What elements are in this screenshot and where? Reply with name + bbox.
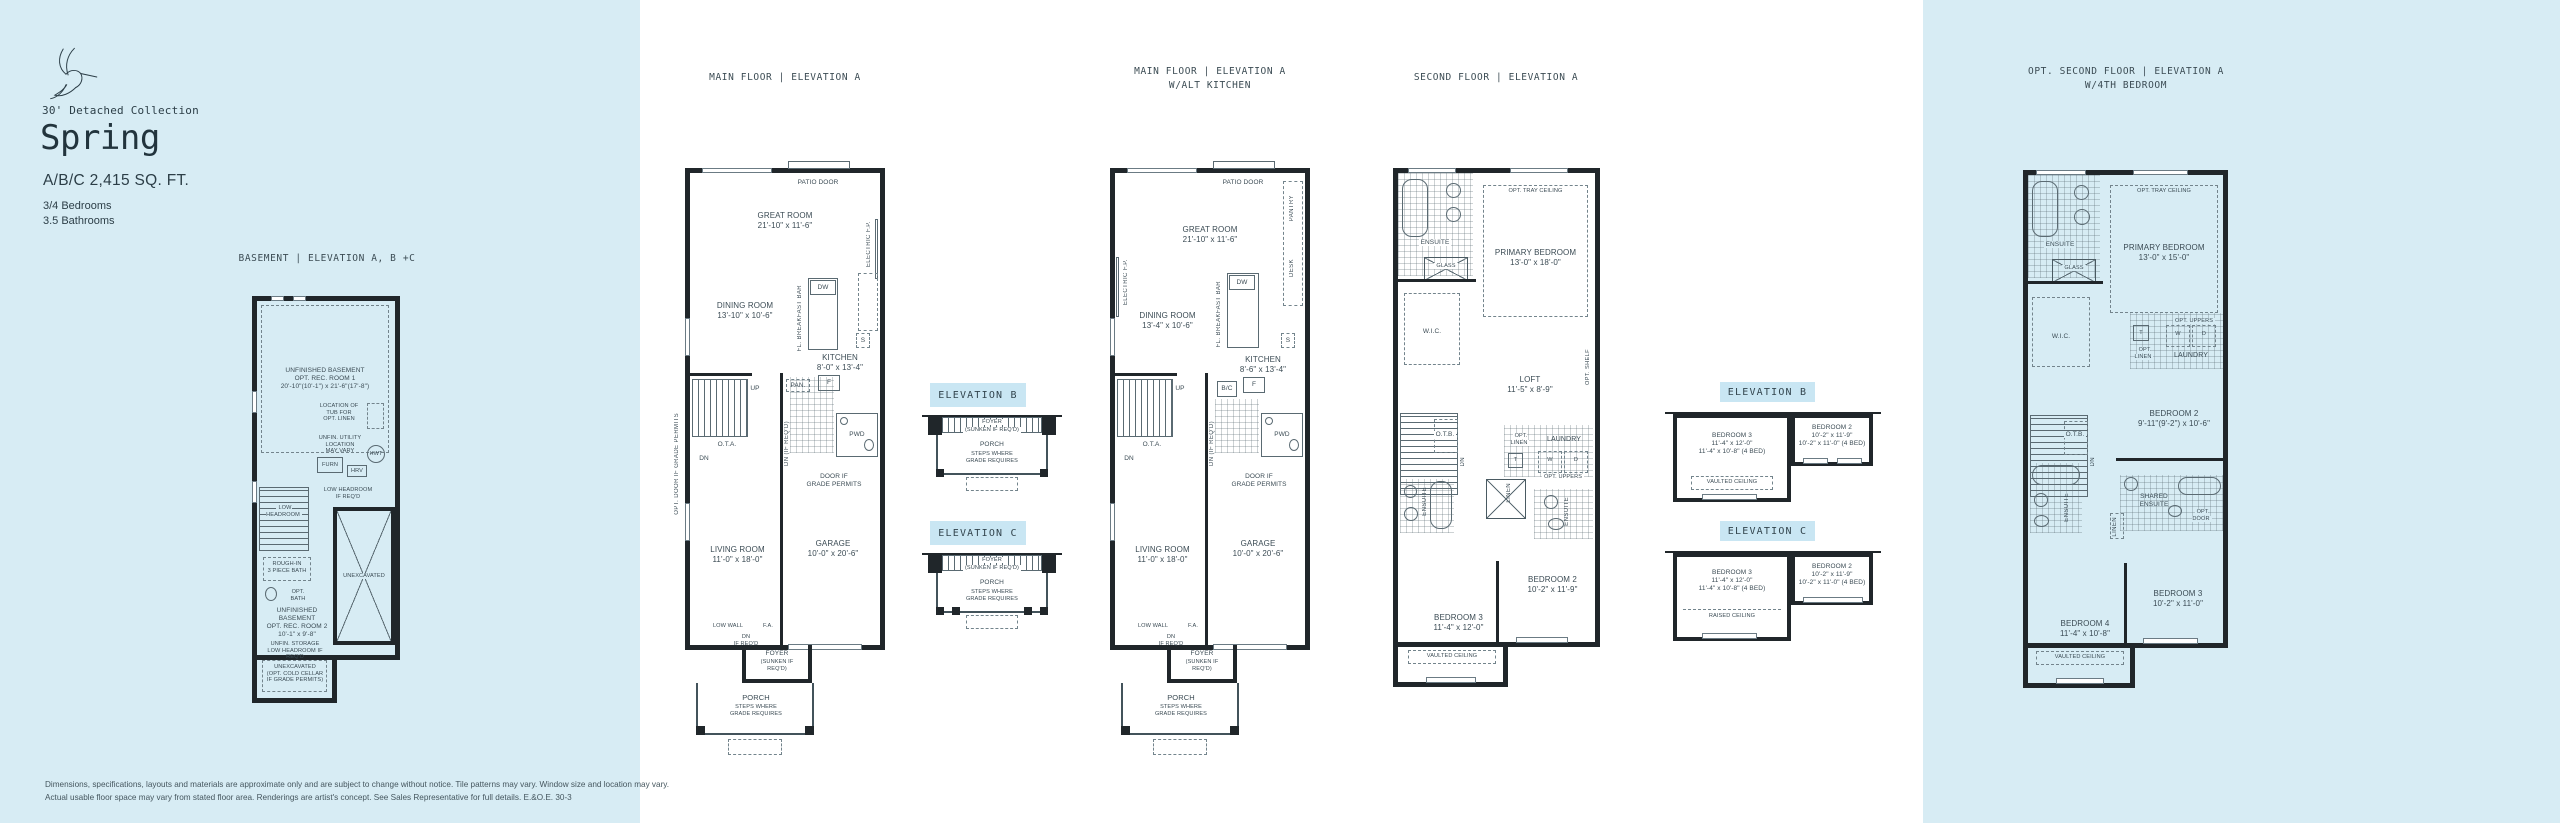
powder-label: PWD [838,431,876,439]
main-floor-plan-alt-kitchen: PATIO DOOR PANTRY DESK GREAT ROOM 21'-10… [1110,168,1310,650]
sink-icon [2074,209,2090,225]
interior-wall [690,373,752,376]
basement-window [271,296,284,301]
s-label: S [1281,337,1295,345]
porch-label: PORCH [716,693,796,703]
garage-label: GARAGE 10'-0" x 20'-6" [788,539,878,560]
inset-bedroom2-label: BEDROOM 2 10'-2" x 11'-9" 10'-2" x 11'-0… [1795,424,1869,448]
bedroom4-window [2056,678,2104,684]
porch-post [952,607,960,615]
tray-ceiling-label: OPT. TRAY CEILING [2120,188,2208,195]
vaulted-label: VAULTED CEILING [1693,479,1771,486]
low-wall-label: LOW WALL [1129,623,1177,630]
rough-in-bath-label: ROUGH-IN 3 PIECE BATH [263,561,311,574]
opt-door-grade-label: OPT. DOOR IF GRADE PERMITS [674,413,680,515]
basement-plan: UNFINISHED BASEMENT OPT. REC. ROOM 1 20'… [252,296,400,660]
tub-icon [2032,465,2080,485]
opt-tub-box [367,403,384,429]
sink-icon [2124,477,2138,491]
up-label: UP [1171,385,1189,393]
basement-title: BASEMENT | ELEVATION A, B +C [217,253,437,264]
porch-post [1121,726,1130,735]
sink-icon [1446,207,1461,222]
dn-if-reqd-label: DN (IF REQ'D) [1209,421,1215,466]
elevation-c-badge: ELEVATION C [1720,521,1815,541]
wic-label: W.I.C. [2044,333,2078,341]
linen-label: LINEN [2112,517,2118,537]
opt-bath-label: OPT. BATH [283,589,313,602]
living-room-label: LIVING ROOM 11'-0" x 18'-0" [1115,545,1210,566]
bedroom2-window [1516,637,1568,643]
rec-room-1-label: UNFINISHED BASEMENT OPT. REC. ROOM 1 20'… [262,367,388,391]
wic-label: W.I.C. [1416,328,1448,336]
breakfast-bar-label: FL. BREAKFAST BAR [797,285,803,351]
primary-bedroom-label: PRIMARY BEDROOM 13'-0" x 18'-0" [1483,248,1588,269]
toilet-icon [1404,507,1418,521]
porch-post [936,607,944,615]
inset-steps [966,615,1018,629]
inset-bedroom2-box: BEDROOM 2 10'-2" x 11'-9" 10'-2" x 11'-0… [1791,414,1873,466]
s-label: S [856,337,870,345]
dishwasher-label: DW [1229,279,1255,287]
foyer-note-label: (SUNKEN IF REQ'D) [1172,659,1232,672]
inset-bedroom3-label: BEDROOM 3 11'-4" x 12'-0" 11'-4" x 10'-8… [1681,432,1783,456]
bedroom3-bump: VAULTED CEILING [1393,642,1508,687]
low-headroom-reqd-label: LOW HEADROOM IF REQ'D [313,487,383,500]
opt-linen-label: OPT. LINEN [1506,433,1534,446]
glass-label: GLASS [2058,265,2090,272]
porch-post [1040,469,1048,477]
opt-uppers-label: OPT. UPPERS [2168,318,2220,325]
bedroom4-label: BEDROOM 4 11'-4" x 10'-8" [2040,619,2130,640]
vaulted-label: VAULTED CEILING [1410,653,1494,660]
primary-window [2133,170,2188,175]
up-label: UP [746,385,764,393]
pantry-cabinets [858,273,878,331]
opt-linen-text: OPT. LINEN [2135,347,2154,360]
unexcavated-area: UNEXCAVATED [333,507,395,645]
low-wall-label: LOW WALL [704,623,752,630]
bedroom4-bump: VAULTED CEILING [2023,643,2135,688]
kitchen-label: KITCHEN 8'-6" x 13'-4" [1223,355,1303,376]
sink-icon [2034,493,2048,507]
inset-window [1837,458,1862,464]
disclaimer-line2: Actual usable floor space may vary from … [45,793,572,802]
bedrooms-label: 3/4 Bedrooms [43,200,111,212]
laundry-tub-label: T [2133,330,2149,337]
great-room-label: GREAT ROOM 21'-10" x 11'-6" [1150,225,1270,246]
primary-bedroom-label: PRIMARY BEDROOM 13'-0" x 15'-0" [2110,243,2218,264]
tray-ceiling-text: OPT. TRAY CEILING [2135,188,2193,194]
opt-door-label: OPT. DOOR [2186,509,2218,522]
porch-label: PORCH [1141,693,1221,703]
ensuite-text: ENSUITE [2044,241,2077,248]
porch-post [936,469,944,477]
wic-outline [2032,297,2090,367]
inset-bedroom2-label: BEDROOM 2 10'-2" x 11'-9" 10'-2" x 11'-0… [1795,563,1869,587]
tub-location-label: LOCATION OF TUB FOR OPT. LINEN [315,403,363,423]
inset-foyer-note: (SUNKEN IF REQ'D) [958,565,1026,572]
otb-text: O.T.B. [1434,431,1457,438]
main-floor-a-title: MAIN FLOOR | ELEVATION A [675,72,895,83]
porch-post [1040,607,1048,615]
inset-porch-note: STEPS WHERE GRADE REQUIRES [958,451,1026,464]
hwt-label: HWT [367,451,385,458]
porch-post [696,726,705,735]
bedroom2-label: BEDROOM 2 10'-2" x 11'-9" [1510,575,1595,596]
fireplace-icon [1116,257,1119,317]
inset-foyer-note: (SUNKEN IF REQ'D) [958,427,1026,434]
sink-icon [1404,485,1417,498]
washer-label: W [1538,457,1562,464]
opt-linen-label: OPT. LINEN [2130,347,2158,360]
sink-icon [1446,183,1461,198]
garage-label: GARAGE 10'-0" x 20'-6" [1213,539,1303,560]
collection-label: 30' Detached Collection [42,104,199,117]
ensuite-label: ENSUITE [1406,239,1464,247]
bedroom3-label: BEDROOM 3 10'-2" x 11'-0" [2133,589,2223,610]
elevation-b-inset-second: ELEVATION B BEDROOM 3 11'-4" x 12'-0" 11… [1673,382,1873,507]
closet-x-icon [1486,479,1526,519]
dn-label: DN [1119,455,1139,463]
second-floor-plan: ENSUITE GLASS OPT. TRAY CEILING PRIMARY … [1393,168,1600,647]
opt-second-floor-title-line2: W/4TH BEDROOM [2016,80,2236,91]
great-room-window [702,168,772,173]
ota-label: O.T.A. [1137,441,1167,449]
dining-room-label: DINING ROOM 13'-10" x 10'-6" [690,301,800,322]
door-grade-label: DOOR IF GRADE PERMITS [790,473,878,489]
ensuite-label: ENSUITE [2032,241,2088,249]
inset-window [1803,597,1863,603]
right-blue-panel [1923,0,2560,823]
opt-linen-text: OPT. LINEN [1511,433,1530,446]
main-floor-alt-title-line2: W/ALT KITCHEN [1100,80,1320,91]
primary-window [1510,168,1568,173]
tray-ceiling-text: OPT. TRAY CEILING [1507,188,1565,194]
basement-window [252,481,257,503]
porch-note-label: STEPS WHERE GRADE REQUIRES [1141,704,1221,717]
second-floor-title: SECOND FLOOR | ELEVATION A [1386,72,1606,83]
fa-label: F.A. [756,623,780,630]
inset-porch-label: PORCH [962,579,1022,587]
bedroom2-label: BEDROOM 2 9'-11"(9'-2") x 10'-6" [2120,409,2228,430]
main-stairs [1117,379,1173,437]
toilet-icon [2168,505,2182,517]
rec-room-2-label: UNFINISHED BASEMENT OPT. REC. ROOM 2 10'… [265,607,329,640]
tub-icon [1402,179,1428,237]
foyer-label: FOYER [1172,650,1232,658]
inset-foyer-note-text: (SUNKEN IF REQ'D) [963,427,1021,433]
toilet-icon [2034,515,2049,527]
glass-text: GLASS [2062,265,2085,271]
garage-wall [1205,373,1208,645]
ensuite-right-label: ENSUITE [1564,497,1570,526]
tray-ceiling-label: OPT. TRAY CEILING [1493,188,1578,195]
porch-steps [728,739,782,755]
porch-steps [1153,739,1207,755]
cold-cellar-label: UNEXCAVATED (OPT. COLD CELLAR IF GRADE P… [260,664,330,684]
living-room-label: LIVING ROOM 11'-0" x 18'-0" [690,545,785,566]
inset-foyer-text: FOYER [980,557,1004,563]
inset-wall-block [928,555,942,573]
utility-label: UNFIN. UTILITY LOCATION MAY VARY [315,435,365,455]
patio-door-bump [1213,161,1275,169]
ensuite-left-label: ENSUITE [1422,487,1428,516]
unexcavated-text: UNEXCAVATED [341,573,387,579]
living-window [685,318,690,356]
inset-window [1702,494,1757,500]
dn-if-reqd-label: DN (IF REQ'D) [784,421,790,466]
disclaimer-line1: Dimensions, specifications, layouts and … [45,780,669,789]
tub-icon [2178,477,2221,495]
loft-label: LOFT 11'-5" x 8'-9" [1490,375,1570,396]
glass-label: GLASS [1430,263,1462,270]
elevation-c-badge: ELEVATION C [930,521,1026,545]
opt-uppers-label: OPT. UPPERS [1536,474,1590,481]
basement-window [252,391,257,413]
elevation-b-badge: ELEVATION B [1720,382,1815,402]
basement-stairs [259,487,309,551]
kitchen-label: KITCHEN 8'-0" x 13'-4" [800,353,880,374]
otb-text: O.T.B. [2064,431,2087,438]
hrv-label: HRV [347,468,367,475]
powder-label: PWD [1263,431,1301,439]
sink-icon [1265,417,1273,425]
opt-second-floor-plan: ENSUITE GLASS OPT. TRAY CEILING PRIMARY … [2023,170,2228,648]
inset-bedroom3-box: BEDROOM 3 11'-4" x 12'-0" 11'-4" x 10'-8… [1673,553,1791,641]
dn-label: DN [2090,457,2096,466]
dryer-label: D [2192,331,2216,338]
elevation-b-badge: ELEVATION B [930,383,1026,407]
breakfast-bar-label: FL. BREAKFAST BAR [1216,281,1222,347]
inset-foyer-note-text: (SUNKEN IF REQ'D) [963,565,1021,571]
model-name: Spring [40,118,160,158]
otb-label: O.T.B. [1430,431,1460,439]
interior-wall [1398,279,1476,282]
ensuite-text: ENSUITE [1419,239,1452,246]
living-window [1110,318,1115,356]
laundry-label: LAUNDRY [1536,435,1592,444]
pantry-label: PANTRY [1289,195,1295,221]
patio-door-bump [788,161,850,169]
inset-wall-block [1042,555,1056,573]
bedroom3-window [2143,638,2198,644]
desk-label: DESK [1289,259,1295,277]
inset-foyer-text: FOYER [980,419,1004,425]
low-headroom-label: LOW HEADROOM [259,505,309,518]
main-stairs [692,379,748,437]
garage-wall [780,373,783,645]
floorplan-sheet: 30' Detached Collection Spring A/B/C 2,4… [0,0,2560,823]
great-room-window [1127,168,1197,173]
door-grade-label: DOOR IF GRADE PERMITS [1215,473,1303,489]
electric-fp-label: ELECTRIC F.P. [1123,259,1129,305]
dryer-label: D [1564,457,1588,464]
opt-door-text: OPT. DOOR [2192,509,2211,522]
elevation-c-inset-main: ELEVATION C FOYER (SUNKEN IF REQ'D) PORC… [922,521,1062,641]
bathrooms-label: 3.5 Bathrooms [43,215,115,227]
foyer-note-label: (SUNKEN IF REQ'D) [747,659,807,672]
inset-foyer-label: FOYER [970,419,1014,426]
raised-ceiling-line [1683,609,1781,610]
patio-door-label: PATIO DOOR [1203,179,1283,187]
foyer-label: FOYER [747,650,807,658]
vaulted-label: VAULTED CEILING [2038,654,2122,661]
inset-porch-note: STEPS WHERE GRADE REQUIRES [958,589,1026,602]
sink-icon [840,417,848,425]
toilet-icon [1548,518,1564,530]
hummingbird-logo [38,44,108,110]
otb-label: O.T.B. [2060,431,2090,439]
unexcavated-label: UNEXCAVATED [339,573,389,580]
ensuite2-label: ENSUITE [2064,493,2070,522]
sink-icon [1544,495,1558,509]
inset-wall-block [928,417,942,435]
inset-bedroom3-label: BEDROOM 3 11'-4" x 12'-0" 11'-4" x 10'-8… [1681,569,1783,593]
bedroom3-window [1426,677,1476,683]
furnace-label: FURN [317,462,343,469]
inset-bedroom3-box: BEDROOM 3 11'-4" x 12'-0" 11'-4" x 10'-8… [1673,414,1791,502]
electric-fp-label: ELECTRIC F.P. [866,221,872,267]
toilet-icon [265,587,277,601]
basement-window [293,296,306,301]
inset-window [1702,633,1757,639]
opt-u ppers-text: OPT. UPPERS [1542,474,1584,480]
opt-uppers-text: OPT. UPPERS [2173,318,2215,324]
square-footage: A/B/C 2,415 SQ. FT. [43,172,189,190]
toilet-icon [864,439,874,451]
inset-bedroom2-box: BEDROOM 2 10'-2" x 11'-9" 10'-2" x 11'-0… [1791,553,1873,605]
living-window [1110,503,1115,541]
fireplace-icon [875,219,878,279]
porch-post [1024,607,1032,615]
glass-text: GLASS [1434,263,1457,269]
toilet-icon [1289,439,1299,451]
main-floor-alt-title-line1: MAIN FLOOR | ELEVATION A [1100,66,1320,77]
ota-label: O.T.A. [712,441,742,449]
dn-label: DN [1460,457,1466,466]
fa-label: F.A. [1181,623,1205,630]
inset-window [1803,458,1828,464]
dining-room-label: DINING ROOM 13'-4" x 10'-6" [1115,311,1220,332]
low-headroom-text: LOW HEADROOM [266,505,302,518]
tub-icon [1430,481,1452,529]
interior-wall [2028,281,2103,284]
opt-shelf-label: OPT. SHELF [1585,349,1591,385]
elevation-c-inset-second: ELEVATION C BEDROOM 3 11'-4" x 12'-0" 11… [1673,521,1873,646]
laundry-tub-label: T [1508,457,1523,464]
inset-steps [966,477,1018,491]
fridge-label: F [1243,381,1265,389]
great-room-label: GREAT ROOM 21'-10" x 11'-6" [725,211,845,232]
laundry-label: LAUNDRY [2162,351,2220,360]
broom-closet-label: B/C [1217,385,1237,393]
inset-porch-label: PORCH [962,441,1022,449]
washer-label: W [2166,331,2190,338]
porch-note-label: STEPS WHERE GRADE REQUIRES [716,704,796,717]
inset-foyer-label: FOYER [970,557,1014,564]
tub-icon [2032,181,2058,237]
porch-post [805,726,814,735]
elevation-b-inset-main: ELEVATION B FOYER (SUNKEN IF REQ'D) PORC… [922,383,1062,503]
opt-second-floor-title-line1: OPT. SECOND FLOOR | ELEVATION A [2016,66,2236,77]
inset-wall-block [1042,417,1056,435]
raised-ceiling-label: RAISED CEILING [1693,613,1771,620]
dishwasher-label: DW [810,284,836,292]
sink-icon [2074,185,2089,200]
mudroom-tile [790,377,834,453]
interior-wall [1115,373,1177,376]
porch-post [1230,726,1239,735]
dn-label: DN [694,455,714,463]
living-window [685,503,690,541]
main-floor-plan-a: PATIO DOOR GREAT ROOM 21'-10" x 11'-6" E… [685,168,885,650]
mudroom-tile [1215,399,1259,453]
bedroom3-label: BEDROOM 3 11'-4" x 12'-0" [1416,613,1501,634]
patio-door-label: PATIO DOOR [778,179,858,187]
interior-wall [2116,458,2223,461]
cold-cellar-bump: UNEXCAVATED (OPT. COLD CELLAR IF GRADE P… [252,655,337,703]
